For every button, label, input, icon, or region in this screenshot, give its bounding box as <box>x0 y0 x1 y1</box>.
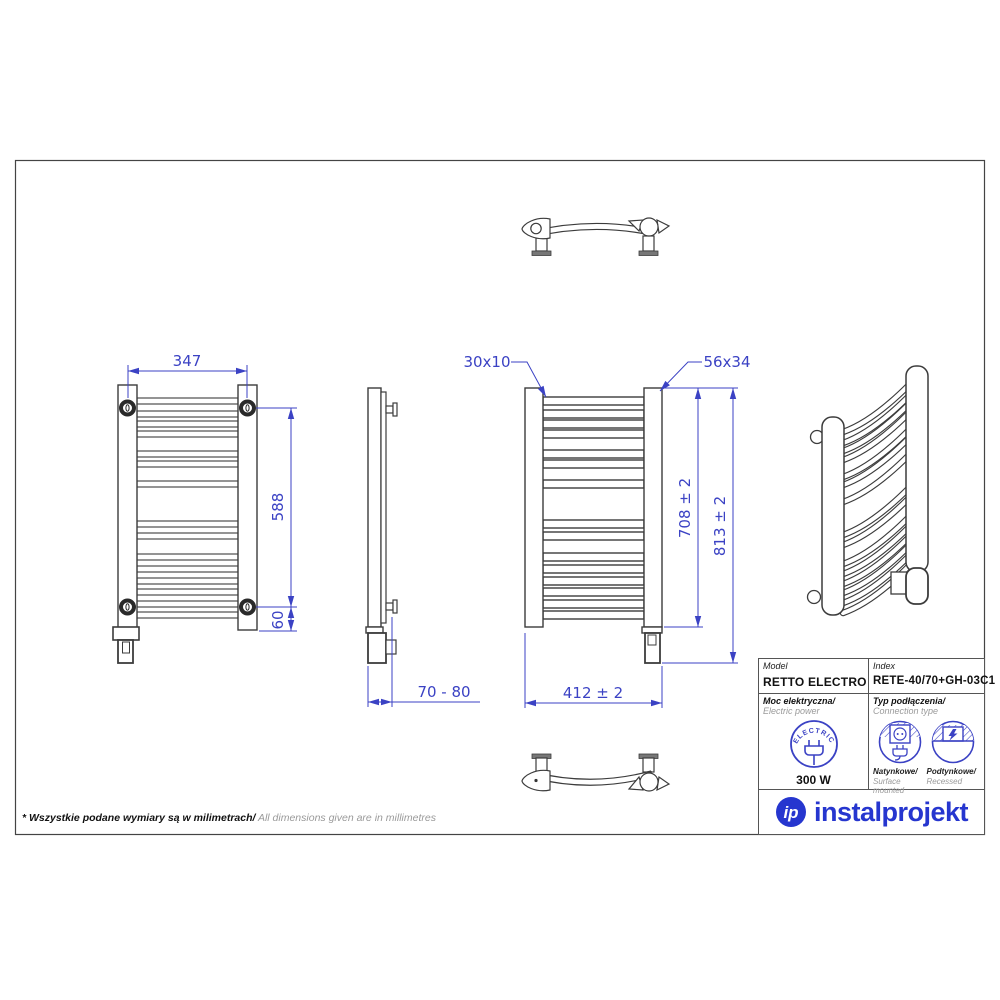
recessed-icon <box>930 719 976 765</box>
top-view <box>522 218 669 256</box>
electric-icon: ELECTRIC <box>787 716 841 772</box>
heating-element-back <box>642 627 662 663</box>
technical-drawing: 347 588 60 70 - 80 30x10 56x34 412 ± 2 7… <box>0 0 1000 1000</box>
front-view-tubes <box>137 398 238 618</box>
power-label-pl: Moc elektryczna/ <box>763 696 835 706</box>
back-view <box>525 388 662 663</box>
front-view <box>113 385 257 663</box>
dim-front-width: 347 <box>173 352 202 370</box>
footnote-pl: * Wszystkie podane wymiary są w milimetr… <box>22 812 255 824</box>
dim-profile-size: 30x10 <box>463 353 510 371</box>
brand-logo: ip instalprojekt <box>759 790 984 834</box>
dim-wall-distance: 70 - 80 <box>417 683 470 701</box>
surface-mounted-icon <box>877 719 923 765</box>
power-value: 300 W <box>796 773 831 787</box>
dim-back-width: 412 ± 2 <box>563 684 623 702</box>
connection-label-en: Connection type <box>873 706 938 716</box>
dimension-texts: 347 588 60 70 - 80 30x10 56x34 412 ± 2 7… <box>173 352 751 702</box>
power-label-en: Electric power <box>763 706 820 716</box>
brand-monogram: ip <box>783 803 798 822</box>
brand-logo-icon: ip <box>775 796 807 828</box>
model-value: RETTO ELECTRO <box>763 675 864 689</box>
index-label: Index <box>873 661 995 671</box>
dim-back-height: 708 ± 2 <box>676 478 694 538</box>
power-label: Moc elektryczna/ Electric power <box>763 696 864 716</box>
connection-label-pl: Typ podłączenia/ <box>873 696 945 706</box>
dim-tube-size: 56x34 <box>703 353 750 371</box>
dim-screw-span: 588 <box>269 493 287 522</box>
heating-element-front <box>113 627 139 663</box>
wall-bracket-bottom <box>808 591 821 604</box>
title-block: Model RETTO ELECTRO Index RETE-40/70+GH-… <box>758 658 985 835</box>
recessed-label-pl: Podtynkowe/ <box>927 767 976 776</box>
index-value: RETE-40/70+GH-03C1 <box>873 675 995 687</box>
perspective-view <box>808 366 929 615</box>
drawing-sheet: 347 588 60 70 - 80 30x10 56x34 412 ± 2 7… <box>0 0 1000 1000</box>
brand-name: instalprojekt <box>814 797 968 828</box>
footnote-en: All dimensions given are in millimetres <box>255 812 436 824</box>
surface-label-pl: Natynkowe/ <box>873 767 917 776</box>
dimensions-footnote: * Wszystkie podane wymiary są w milimetr… <box>22 812 436 824</box>
dim-bottom-offset: 60 <box>269 610 287 629</box>
heating-element-3d <box>906 568 928 604</box>
bottom-view <box>522 754 669 791</box>
dim-total-height: 813 ± 2 <box>711 496 729 556</box>
model-label: Model <box>763 661 864 671</box>
recessed-label-en: Recessed <box>927 777 963 786</box>
back-view-tubes <box>543 397 644 619</box>
